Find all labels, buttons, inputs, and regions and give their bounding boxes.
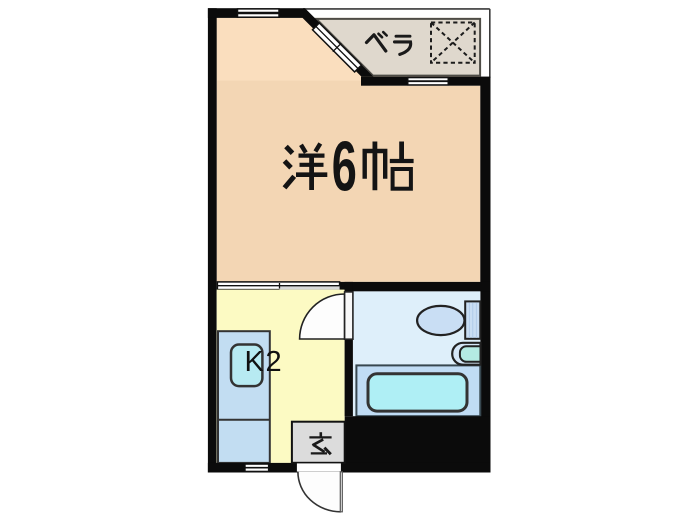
svg-text:K2: K2 — [245, 346, 284, 378]
svg-text:6: 6 — [332, 126, 357, 206]
